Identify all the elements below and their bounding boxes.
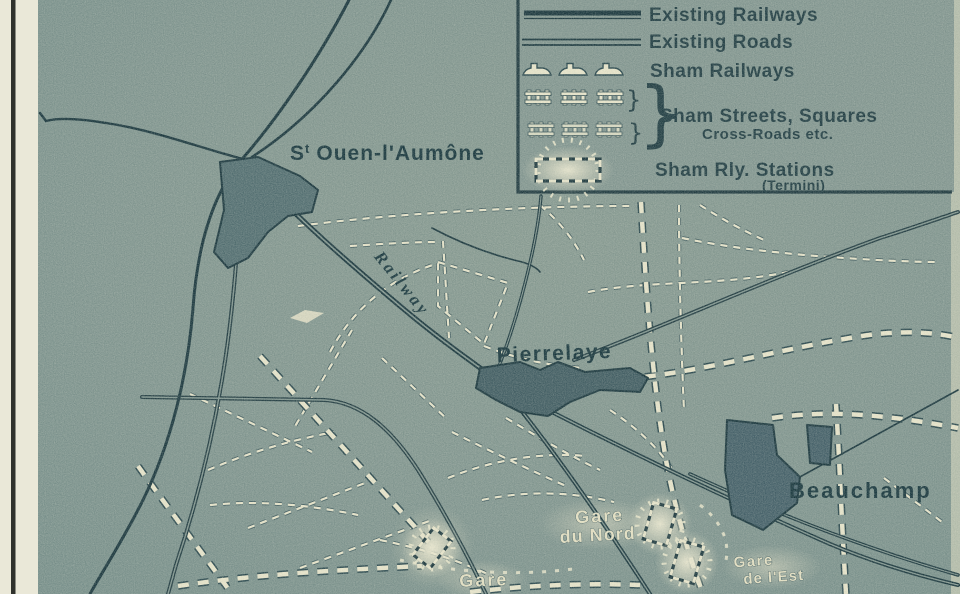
map-canvas: StOuen-l'Aumône Railway Pierrelaye Beauc… (0, 0, 960, 594)
scanned-map-page: StOuen-l'Aumône Railway Pierrelaye Beauc… (0, 0, 960, 594)
map-area: StOuen-l'Aumône Railway Pierrelaye Beauc… (38, 0, 960, 594)
grain-dark (38, 0, 960, 594)
margin-rule-line (11, 0, 16, 594)
